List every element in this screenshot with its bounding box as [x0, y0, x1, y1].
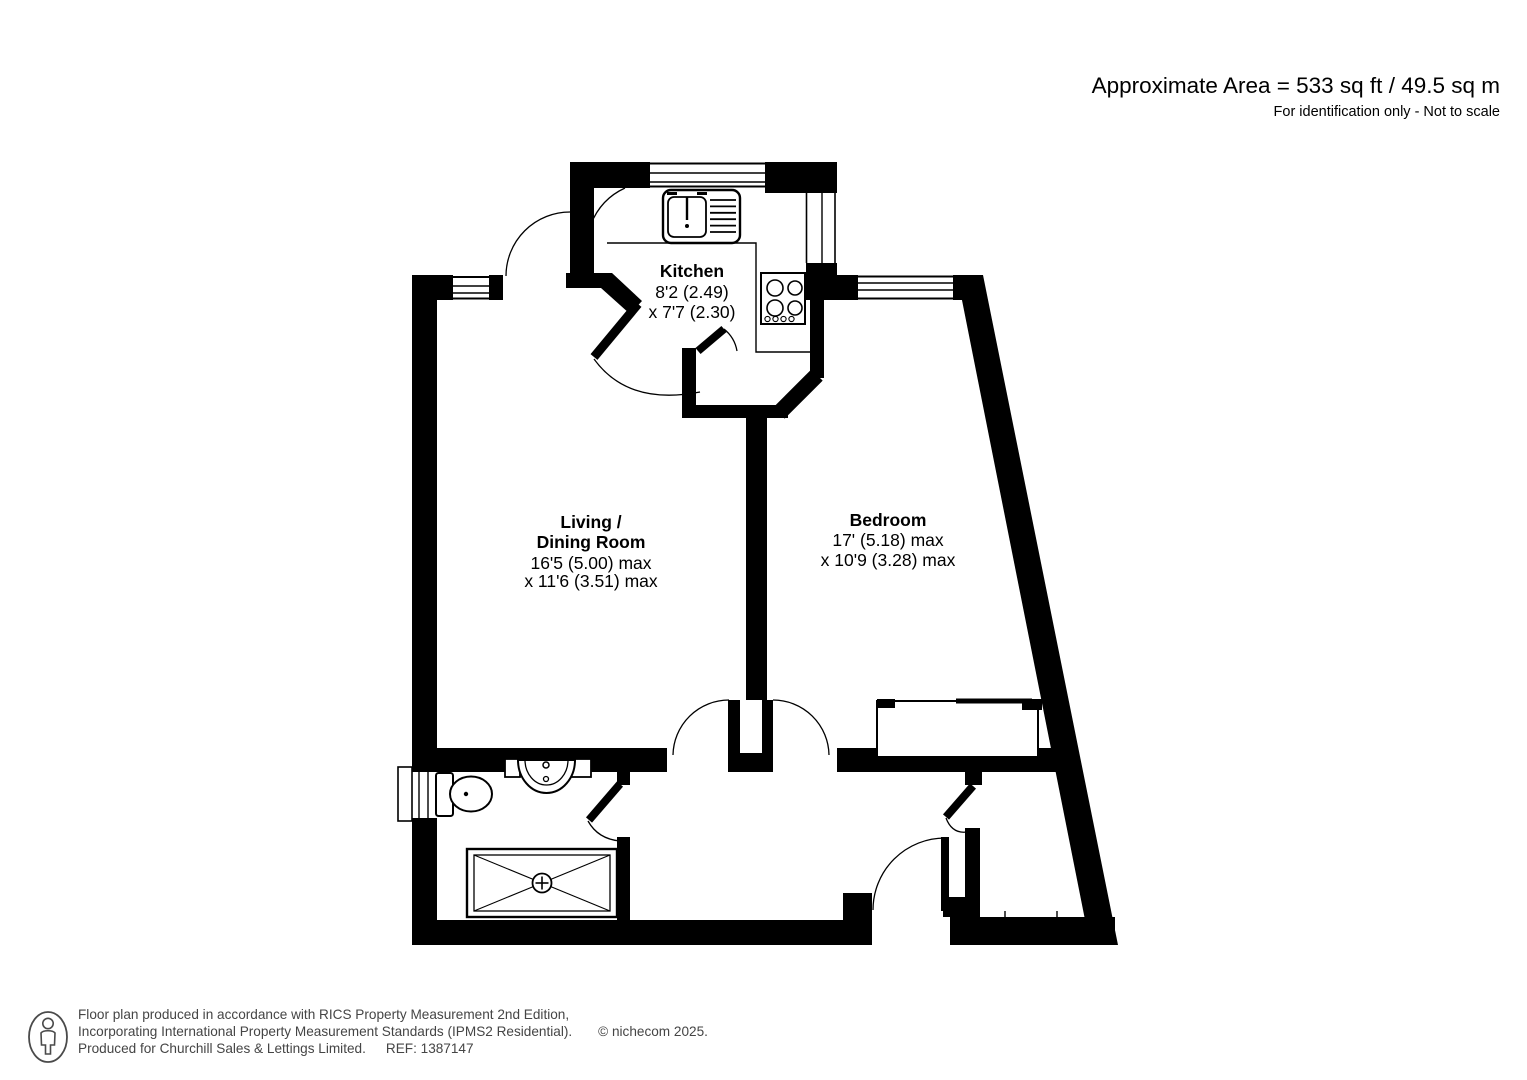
- window-living-top: [453, 277, 489, 299]
- footer-line-3: Produced for Churchill Sales & Lettings …: [78, 1041, 708, 1058]
- wall: [762, 700, 773, 753]
- bedroom-dim1: 17' (5.18) max: [832, 530, 944, 550]
- wall: [965, 828, 980, 897]
- footer: Floor plan produced in accordance with R…: [27, 1007, 708, 1057]
- entrance-door-arc: [873, 838, 945, 910]
- living-dim2: x 11'6 (3.51) max: [524, 571, 658, 591]
- wall: [728, 700, 740, 753]
- kitchen-hob: [761, 273, 805, 324]
- copyright-text: © nichecom 2025.: [598, 1024, 708, 1039]
- window-bathroom-left: [398, 767, 428, 821]
- wall: [765, 162, 837, 193]
- window-kitchen-right: [807, 193, 836, 263]
- wall: [746, 418, 767, 700]
- kitchen-dim1: 8'2 (2.49): [655, 282, 728, 302]
- wall-ticks: [1005, 911, 1057, 918]
- lobby-door-leaf: [698, 329, 724, 351]
- hall-bedroom-door-arc: [773, 700, 829, 755]
- basin: [505, 758, 591, 794]
- living-label-2: Dining Room: [537, 532, 646, 552]
- kitchen-sink: [663, 190, 740, 243]
- wall: [412, 275, 437, 770]
- bedroom-dim2: x 10'9 (3.28) max: [821, 550, 956, 570]
- wall: [965, 772, 982, 785]
- bedroom-label: Bedroom: [850, 510, 927, 530]
- bathroom-door-arc: [588, 821, 620, 841]
- wall: [843, 893, 872, 923]
- wall: [617, 772, 630, 785]
- room-labels: Kitchen 8'2 (2.49) x 7'7 (2.30) Living /…: [524, 261, 955, 591]
- bedroom-closet: [877, 699, 1042, 757]
- wall: [810, 300, 824, 378]
- reference-number: REF: 1387147: [386, 1041, 474, 1056]
- entrance-door-leaf: [941, 837, 949, 911]
- wall: [682, 405, 788, 418]
- wall: [779, 375, 817, 413]
- cupboard-door-leaf: [946, 786, 973, 817]
- kitchen-dim2: x 7'7 (2.30): [649, 302, 736, 322]
- cupboard-door-arc: [946, 818, 967, 832]
- bathroom-door-leaf: [589, 784, 620, 820]
- toilet: [436, 773, 492, 816]
- floor-plan: Kitchen 8'2 (2.49) x 7'7 (2.30) Living /…: [0, 0, 1527, 1080]
- wall: [728, 753, 773, 772]
- hall-living-door-arc: [673, 700, 729, 755]
- shower-tray: [467, 849, 617, 917]
- window-kitchen-top: [650, 164, 765, 187]
- kitchen-upper-arc: [591, 188, 625, 224]
- living-door-arc: [506, 212, 570, 276]
- slanted-wall: [957, 275, 1118, 945]
- living-dim1: 16'5 (5.00) max: [530, 553, 651, 573]
- footer-line-1: Floor plan produced in accordance with R…: [78, 1007, 708, 1024]
- wall: [617, 837, 630, 920]
- wall: [489, 275, 503, 300]
- wall: [837, 275, 858, 300]
- person-icon: [27, 1009, 71, 1065]
- wall: [570, 162, 594, 273]
- footer-line-2: Incorporating International Property Mea…: [78, 1024, 708, 1041]
- floorplan-page: Approximate Area = 533 sq ft / 49.5 sq m…: [0, 0, 1527, 1080]
- kitchen-label: Kitchen: [660, 261, 724, 281]
- kitchen-door-leaf: [594, 304, 638, 357]
- wall: [412, 920, 872, 945]
- window-bedroom-top: [858, 277, 953, 299]
- living-label-1: Living /: [560, 512, 621, 532]
- wall: [806, 263, 837, 300]
